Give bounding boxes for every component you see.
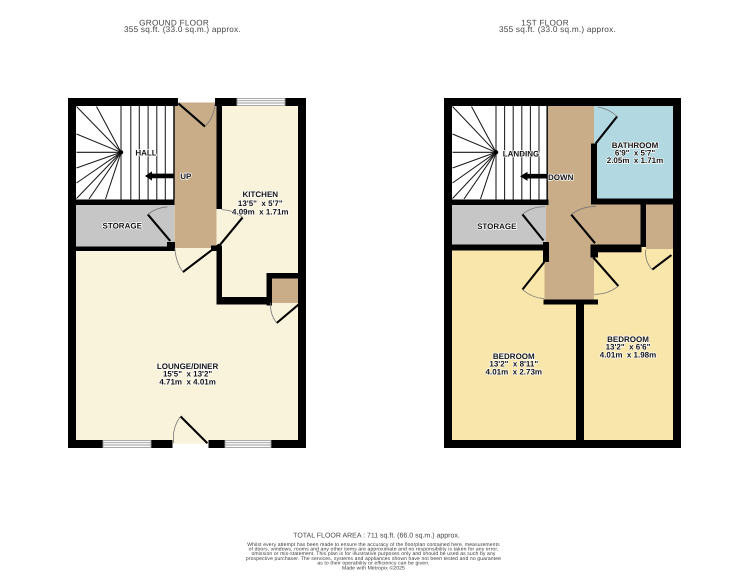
svg-text:UP: UP — [180, 172, 192, 181]
svg-text:4.71m x 4.01m: 4.71m x 4.01m — [159, 378, 215, 387]
svg-text:LANDING: LANDING — [503, 149, 539, 158]
svg-text:HALL: HALL — [135, 149, 156, 158]
svg-text:355 sq.ft. (33.0 sq.m.) approx: 355 sq.ft. (33.0 sq.m.) approx. — [499, 25, 616, 34]
svg-text:355 sq.ft. (33.0 sq.m.) approx: 355 sq.ft. (33.0 sq.m.) approx. — [124, 25, 241, 34]
svg-text:STORAGE: STORAGE — [102, 221, 142, 230]
svg-text:DOWN: DOWN — [548, 173, 574, 182]
svg-text:TOTAL FLOOR AREA : 711 sq.ft.: TOTAL FLOOR AREA : 711 sq.ft. (66.0 sq.m… — [293, 531, 460, 539]
svg-text:4.01m x 1.98m: 4.01m x 1.98m — [600, 351, 656, 360]
svg-text:4.09m x 1.71m: 4.09m x 1.71m — [232, 208, 288, 217]
svg-text:KITCHEN: KITCHEN — [243, 190, 279, 199]
svg-text:Made with Metropix ©2025: Made with Metropix ©2025 — [342, 565, 405, 571]
svg-text:STORAGE: STORAGE — [477, 222, 517, 231]
svg-text:2.05m x 1.71m: 2.05m x 1.71m — [607, 156, 663, 165]
svg-text:4.01m x 2.73m: 4.01m x 2.73m — [486, 368, 542, 377]
